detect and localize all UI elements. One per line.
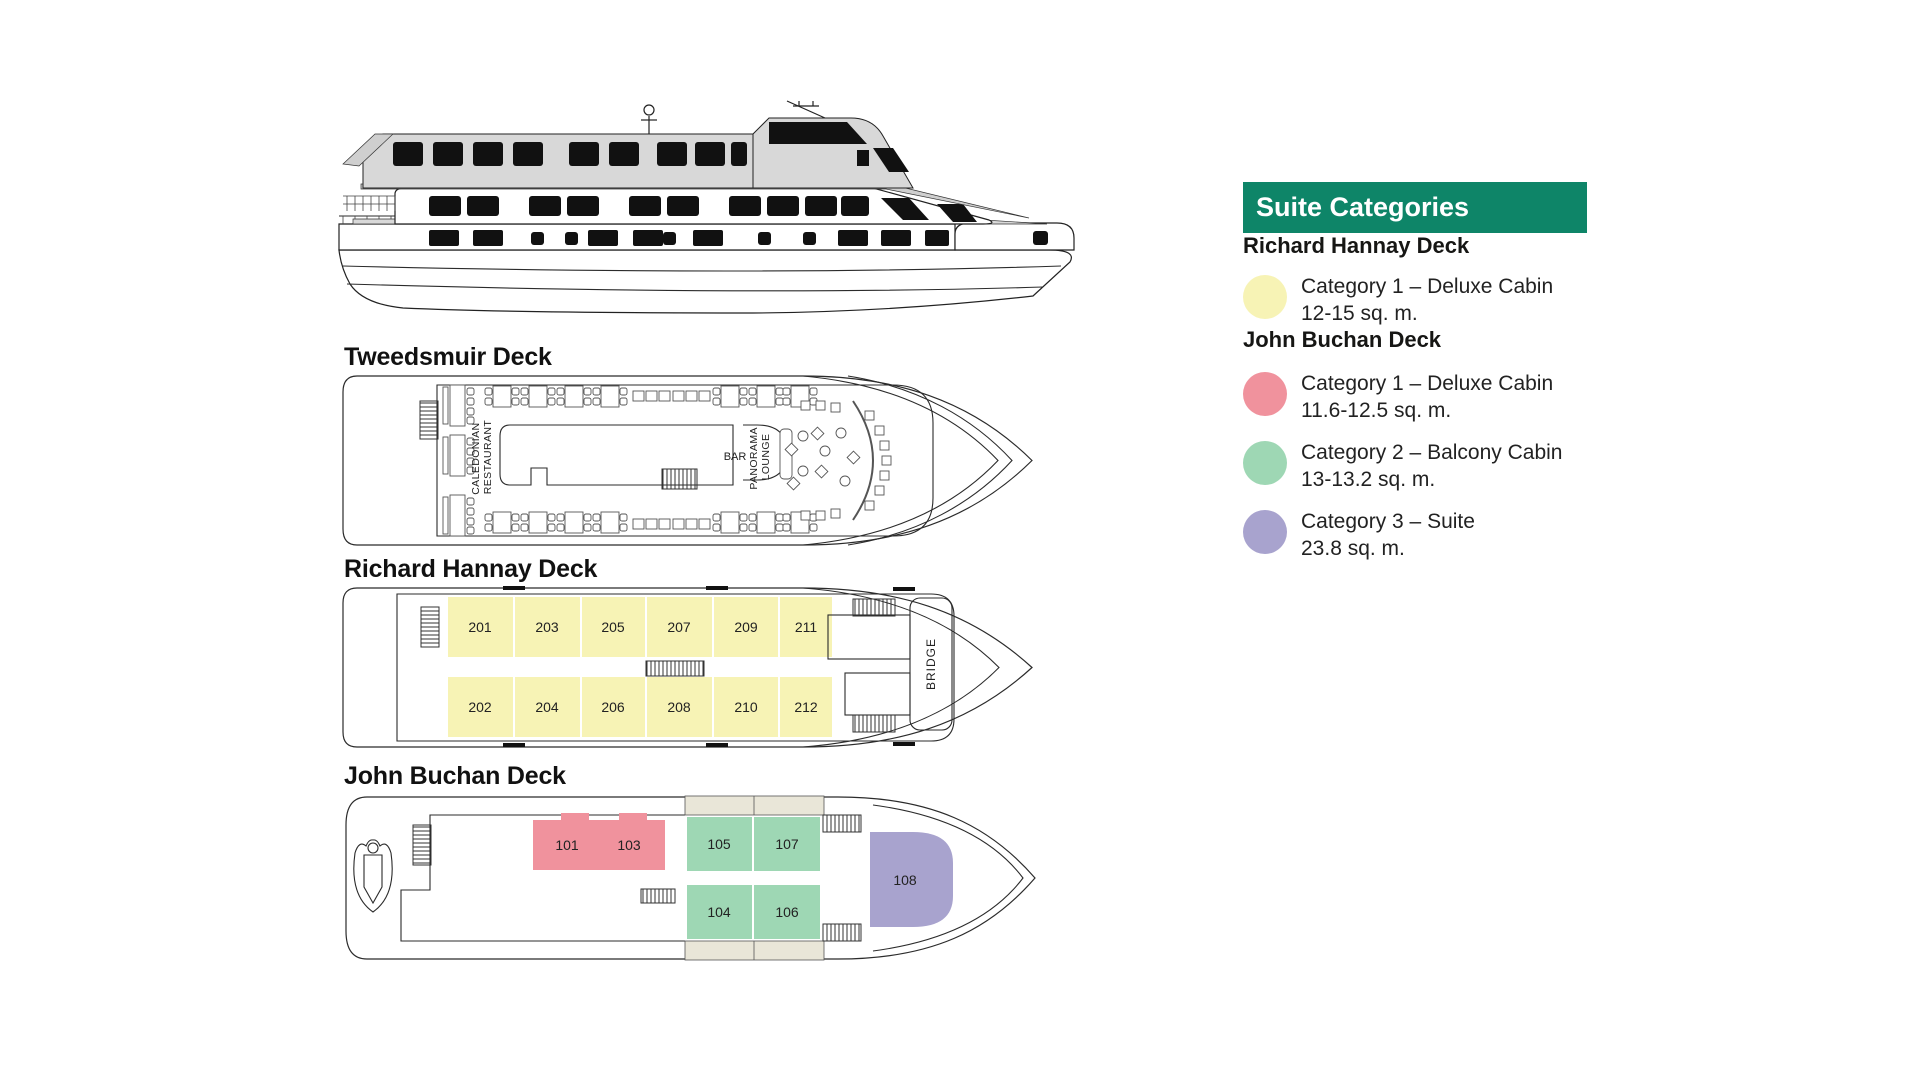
- legend-title: Suite Categories: [1256, 192, 1469, 223]
- deluxe-cabins-block: 101 103: [533, 813, 665, 870]
- svg-text:204: 204: [535, 699, 559, 715]
- svg-text:208: 208: [667, 699, 691, 715]
- svg-text:101: 101: [555, 837, 579, 853]
- stairs: [421, 607, 439, 647]
- svg-text:206: 206: [601, 699, 625, 715]
- forward-mast: [787, 101, 825, 118]
- cabin-101-103: [533, 820, 665, 870]
- category-size: 13-13.2 sq. m.: [1301, 466, 1563, 493]
- richard-hannay-deck-plan: 201 203 205 207 209 211 202 204 206 208 …: [333, 585, 1038, 750]
- stairs: [413, 825, 431, 865]
- legend-deck-heading: John Buchan Deck: [1243, 327, 1663, 353]
- svg-text:103: 103: [617, 837, 641, 853]
- cabins-bottom-row: 202 204 206 208 210 212: [448, 677, 832, 737]
- legend-item: Category 2 – Balcony Cabin 13-13.2 sq. m…: [1243, 439, 1663, 493]
- john-buchan-deck-title: John Buchan Deck: [344, 762, 566, 791]
- svg-text:210: 210: [734, 699, 758, 715]
- category-size: 11.6-12.5 sq. m.: [1301, 397, 1553, 424]
- stairs: [646, 661, 704, 676]
- category-size: 23.8 sq. m.: [1301, 535, 1475, 562]
- legend-item: Category 3 – Suite 23.8 sq. m.: [1243, 508, 1663, 562]
- svg-text:212: 212: [794, 699, 818, 715]
- svg-text:209: 209: [734, 619, 758, 635]
- stairs: [823, 924, 861, 941]
- bar-label: BAR: [724, 451, 747, 463]
- svg-text:105: 105: [707, 836, 731, 852]
- category-size: 12-15 sq. m.: [1301, 300, 1553, 327]
- svg-text:207: 207: [667, 619, 691, 635]
- aft-mast: [641, 105, 657, 134]
- bow-bulwark: [955, 223, 1074, 250]
- ship-profile-illustration: [333, 100, 1078, 335]
- category-swatch: [1243, 275, 1287, 319]
- category-swatch: [1243, 441, 1287, 485]
- john-buchan-deck-plan: 101 103 105 107 104 106 108: [333, 793, 1038, 963]
- category-swatch: [1243, 372, 1287, 416]
- balcony-strip-bottom: [685, 941, 824, 960]
- svg-text:211: 211: [795, 619, 818, 635]
- stairs: [823, 815, 861, 832]
- stairs: [420, 401, 438, 439]
- category-label: Category 1 – Deluxe Cabin: [1301, 370, 1553, 397]
- category-label: Category 2 – Balcony Cabin: [1301, 439, 1563, 466]
- tweedsmuir-deck-plan: CALEDONIAN RESTAURANT BAR PANORAMA LOUNG…: [333, 373, 1038, 548]
- legend-item: Category 1 – Deluxe Cabin 12-15 sq. m.: [1243, 273, 1663, 327]
- legend-header: Suite Categories: [1243, 182, 1587, 233]
- hull: [339, 250, 1071, 313]
- restaurant-label: CALEDONIAN RESTAURANT: [470, 419, 494, 495]
- svg-text:203: 203: [535, 619, 559, 635]
- stairs: [641, 889, 675, 903]
- bridge-label: BRIDGE: [924, 638, 938, 690]
- suite-number: 108: [893, 872, 917, 888]
- svg-text:104: 104: [707, 904, 731, 920]
- svg-text:202: 202: [468, 699, 492, 715]
- svg-text:201: 201: [468, 619, 492, 635]
- category-label: Category 3 – Suite: [1301, 508, 1475, 535]
- aft-railing: [343, 196, 395, 211]
- category-label: Category 1 – Deluxe Cabin: [1301, 273, 1553, 300]
- category-swatch: [1243, 510, 1287, 554]
- lounge-label: PANORAMA LOUNGE: [748, 424, 772, 489]
- tweedsmuir-deck-title: Tweedsmuir Deck: [344, 343, 552, 372]
- stairs: [853, 599, 895, 616]
- stairs: [853, 715, 895, 732]
- legend-deck-heading: Richard Hannay Deck: [1243, 233, 1663, 259]
- svg-text:106: 106: [775, 904, 799, 920]
- cabins-top-row: 201 203 205 207 209 211: [448, 597, 832, 657]
- legend-item: Category 1 – Deluxe Cabin 11.6-12.5 sq. …: [1243, 370, 1663, 424]
- svg-text:205: 205: [601, 619, 625, 635]
- richard-hannay-deck-title: Richard Hannay Deck: [344, 555, 597, 584]
- suite-categories-legend: Suite Categories Richard Hannay Deck Cat…: [1243, 182, 1663, 562]
- svg-text:107: 107: [775, 836, 799, 852]
- stairs: [662, 469, 697, 489]
- balcony-strip-top: [685, 796, 824, 815]
